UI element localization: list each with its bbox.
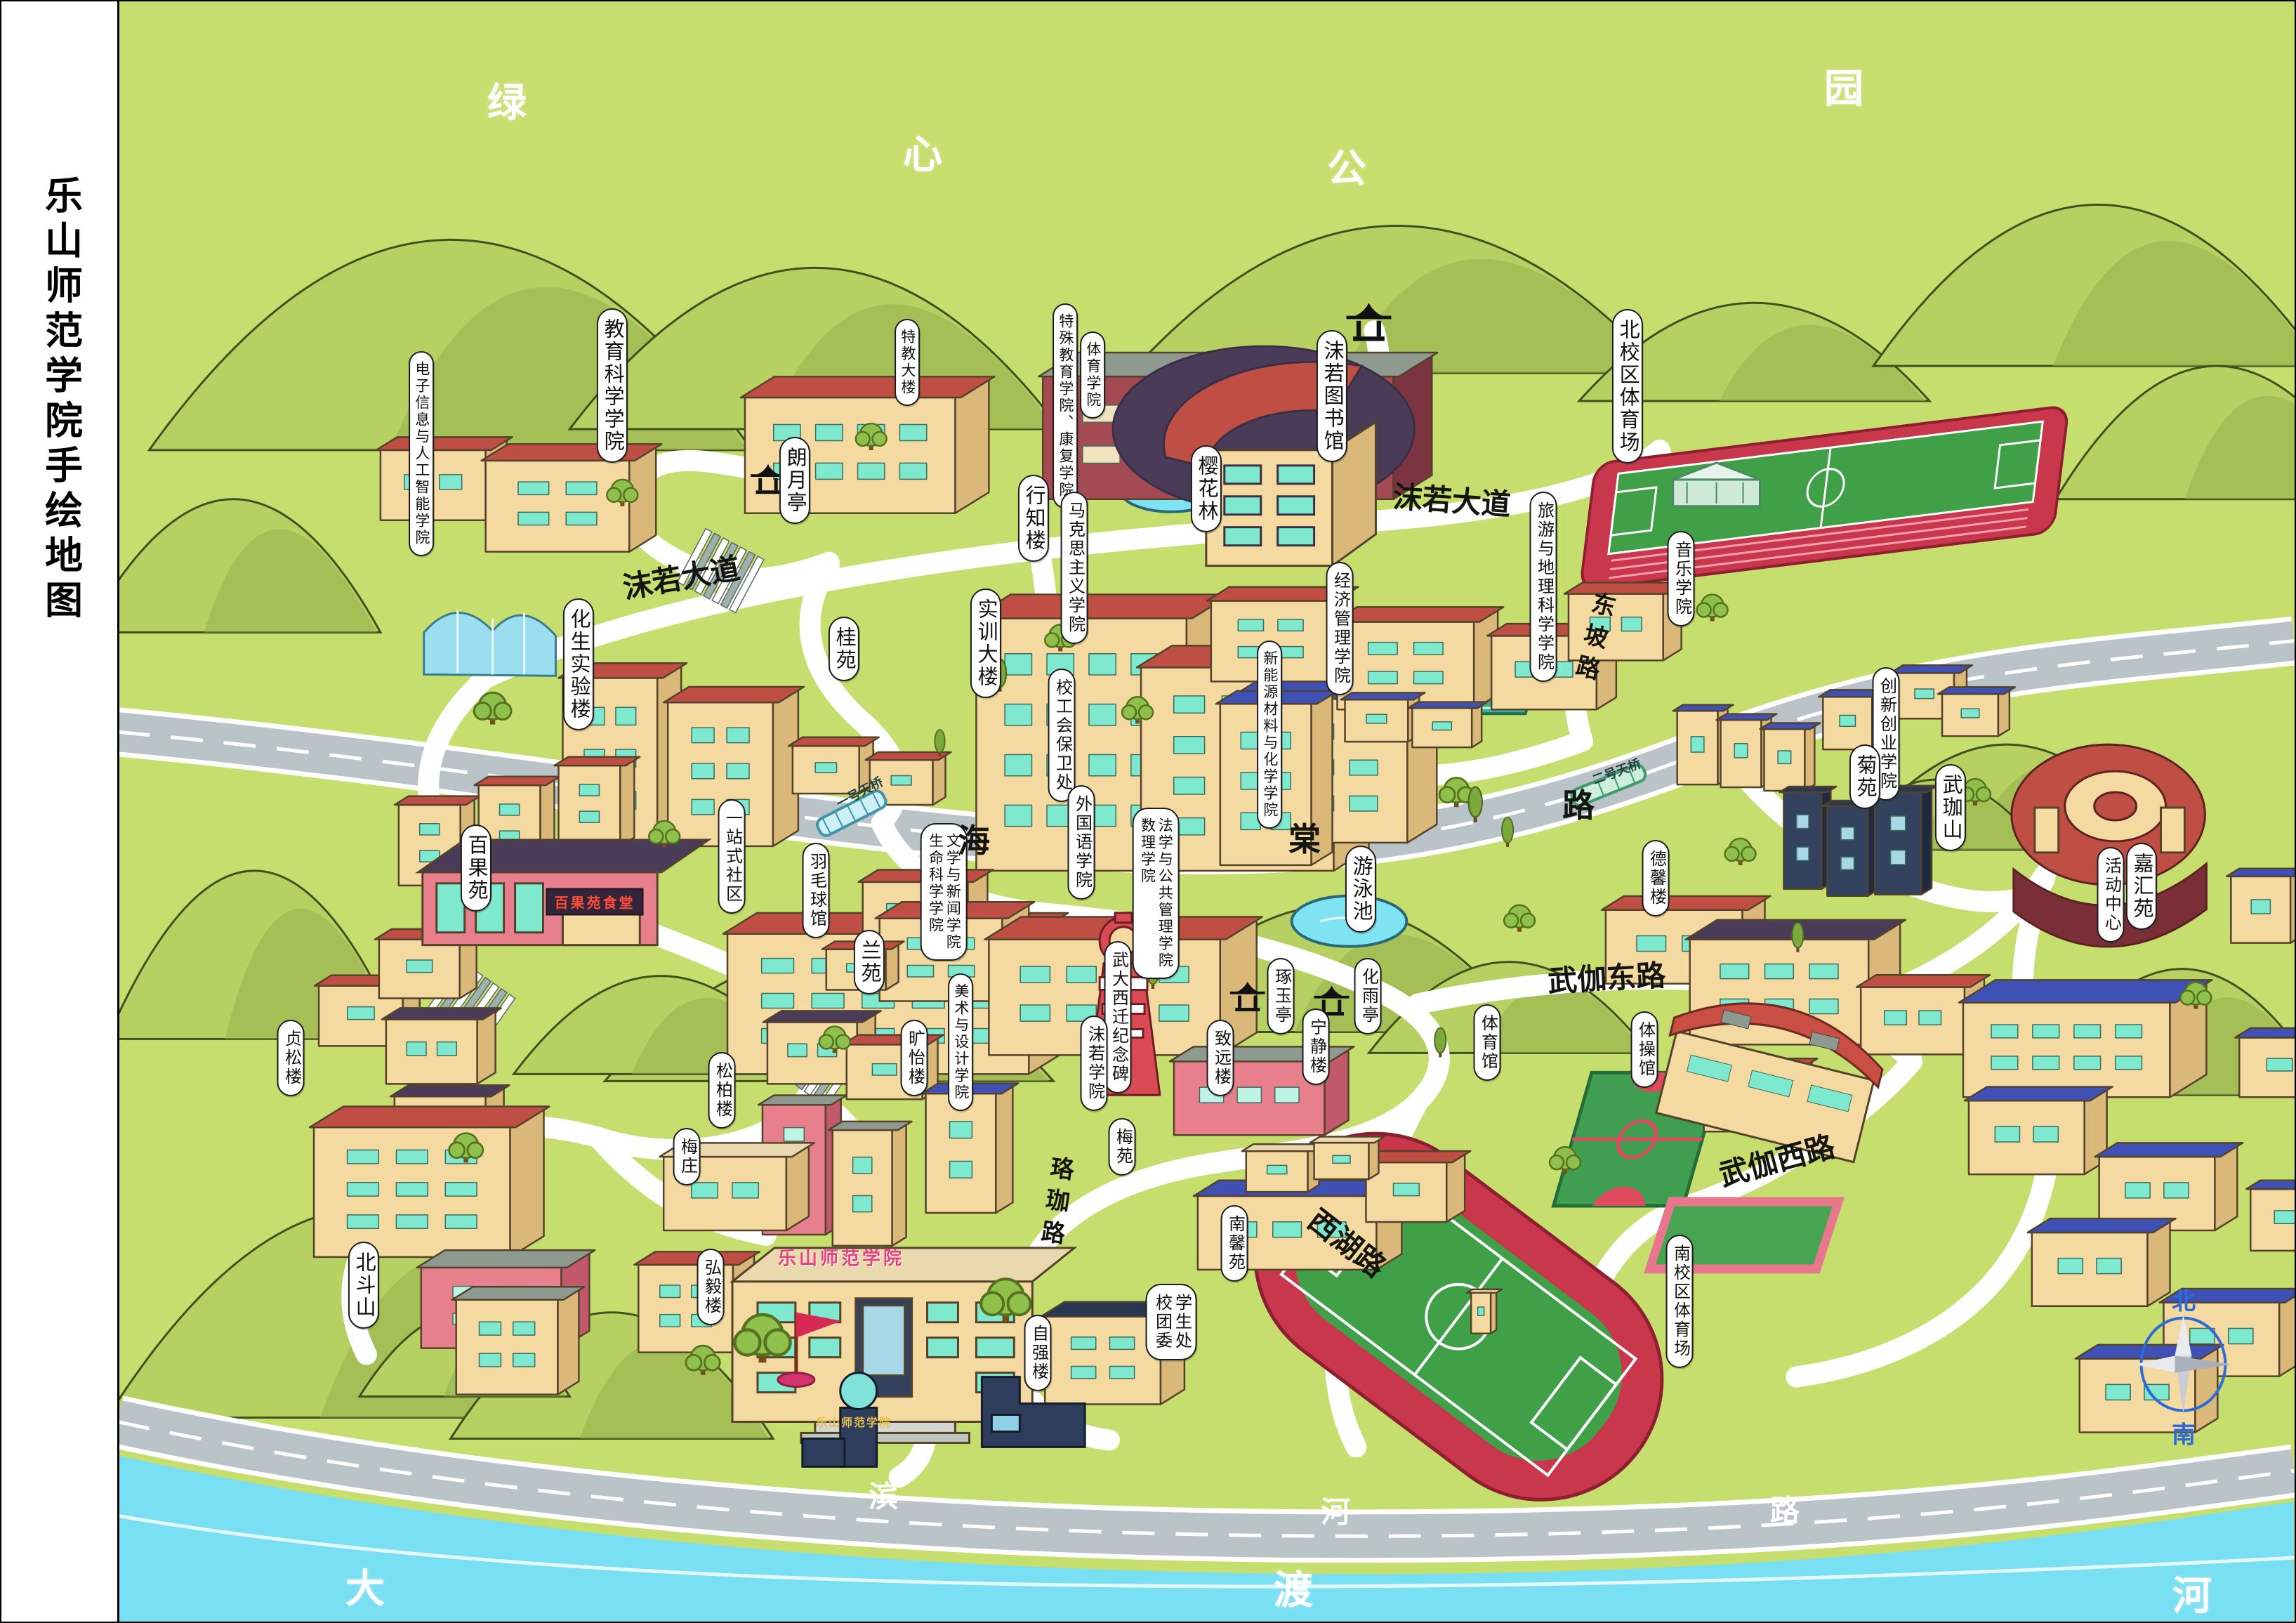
hand-drawn-campus-map: 教育科学学院电子信息与人工智能学院特教大楼特殊教育学院、康复学院体育学院沫若图书… [0, 0, 2296, 1623]
campus-map-illustration [1, 1, 2295, 1622]
map-title: 乐山师范学院手绘地图 [33, 176, 88, 625]
title-panel: 乐山师范学院手绘地图 [1, 1, 119, 1622]
